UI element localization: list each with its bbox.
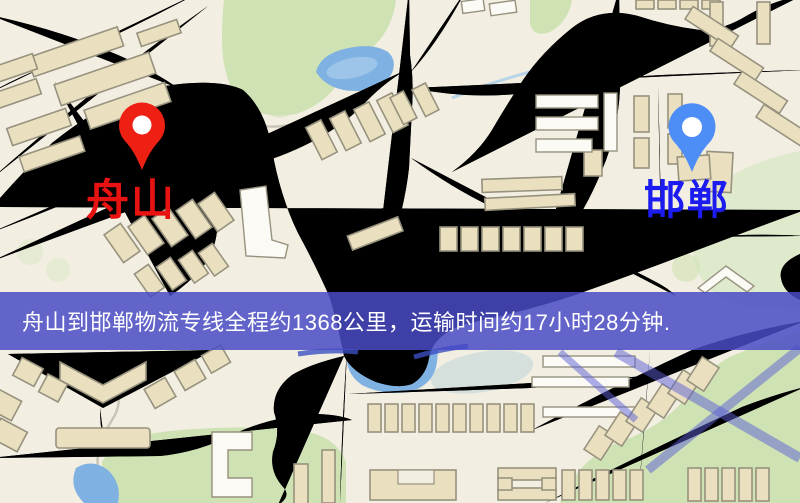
map-canvas[interactable] [0, 0, 800, 503]
map-view: 舟山 邯郸 舟山到邯郸物流专线全程约1368公里，运输时间约17小时28分钟. [0, 0, 800, 503]
blue-pin-hole [682, 117, 702, 137]
destination-city-label: 邯郸 [644, 180, 730, 221]
origin-city-label: 舟山 [86, 180, 176, 223]
route-info-banner: 舟山到邯郸物流专线全程约1368公里，运输时间约17小时28分钟. [0, 292, 800, 350]
route-info-text: 舟山到邯郸物流专线全程约1368公里，运输时间约17小时28分钟. [22, 305, 671, 337]
red-pin-hole [133, 116, 152, 135]
